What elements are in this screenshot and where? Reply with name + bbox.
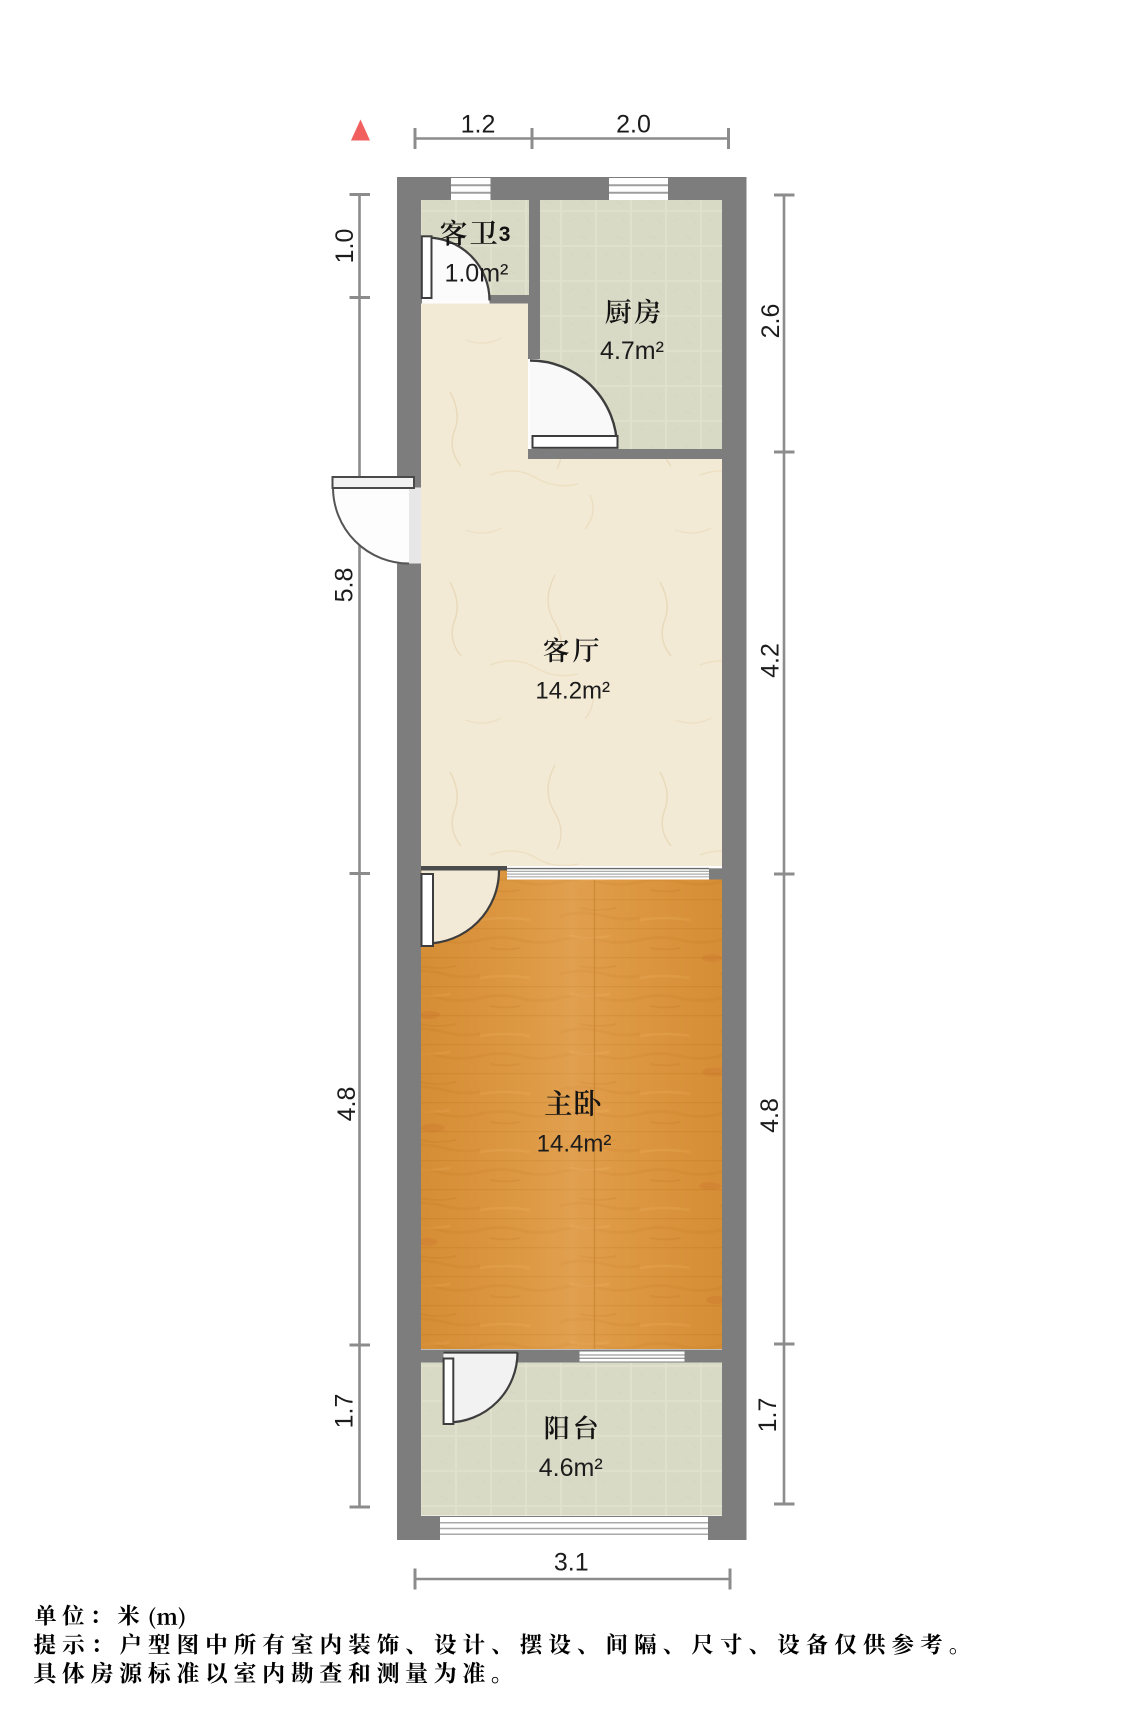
svg-text:1.0: 1.0: [331, 229, 359, 264]
svg-text:1.7: 1.7: [331, 1394, 359, 1429]
svg-text:1.7: 1.7: [754, 1398, 782, 1433]
svg-text:3: 3: [499, 223, 511, 246]
svg-text:4.8: 4.8: [756, 1098, 784, 1133]
svg-text:4.7m²: 4.7m²: [600, 337, 664, 365]
svg-text:4.6m²: 4.6m²: [539, 1454, 603, 1482]
svg-text:4.2: 4.2: [757, 643, 785, 678]
svg-text:2.0: 2.0: [616, 111, 651, 139]
svg-text:5.8: 5.8: [331, 568, 359, 603]
svg-text:14.2m²: 14.2m²: [535, 678, 610, 705]
svg-text:3.1: 3.1: [554, 1549, 589, 1577]
svg-text:1.2: 1.2: [461, 111, 496, 139]
svg-text:14.4m²: 14.4m²: [537, 1131, 612, 1158]
svg-text:4.8: 4.8: [333, 1087, 361, 1122]
svg-text:2.6: 2.6: [757, 304, 785, 339]
svg-text:1.0m²: 1.0m²: [444, 260, 508, 288]
